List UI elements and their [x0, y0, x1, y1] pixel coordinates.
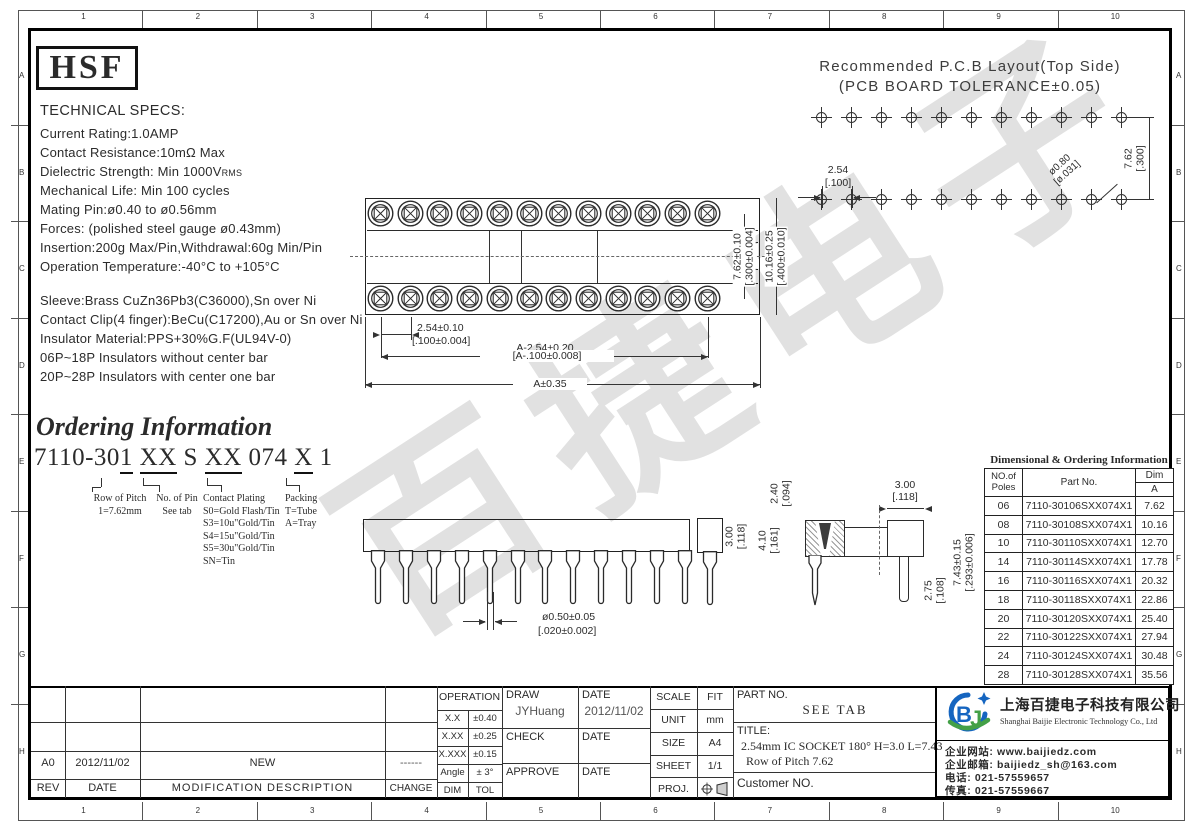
graphic — [425, 550, 443, 608]
body-line — [521, 231, 522, 283]
graphic — [701, 551, 719, 609]
graphic: 08 — [985, 515, 1023, 534]
graphic — [623, 551, 636, 604]
dim-text: 7.62 [.300] — [1122, 126, 1148, 190]
tech-specs-title: TECHNICAL SPECS: — [40, 103, 185, 119]
body-line — [597, 231, 598, 283]
graphic — [481, 550, 499, 608]
graphic — [397, 285, 424, 312]
ruler-number: 3 — [310, 12, 314, 21]
grid-line — [578, 686, 579, 798]
graphic: 10 — [985, 534, 1023, 553]
graphic — [511, 551, 524, 604]
pn-seg: 7110-30 — [34, 444, 120, 471]
ruler-number: 10 — [1111, 12, 1120, 21]
graphic — [704, 552, 717, 605]
socket-hole-icon — [367, 285, 394, 317]
pin-icon — [369, 550, 387, 613]
dim-mm: 10.16±0.25 — [764, 230, 776, 282]
ruler-letter: D — [19, 361, 25, 370]
draw-date: 2012/11/02 — [580, 704, 648, 718]
socket-hole-icon — [486, 285, 513, 317]
end-view-pin — [701, 551, 719, 614]
ruler-tick — [486, 11, 487, 28]
graphic: 7110-30106SXX074X1 — [1023, 497, 1136, 516]
spec-line: 06P~18P Insulators without center bar — [40, 350, 268, 365]
pn-seg-pins: XX — [140, 444, 177, 474]
date-label: DATE — [582, 766, 611, 778]
ruler-number: 6 — [653, 806, 657, 815]
ruler-tick — [11, 704, 28, 705]
pcb-hole-icon — [1086, 194, 1097, 205]
draw-name: JYHuang — [502, 704, 578, 718]
socket-hole-icon — [516, 200, 543, 232]
graphic — [634, 285, 661, 312]
ruler-letter: F — [1176, 554, 1181, 563]
graphic — [427, 551, 440, 604]
graphic: 7110-30124SXX074X1 — [1023, 647, 1136, 666]
ruler-number: 1 — [81, 806, 85, 815]
graphic: 06 — [985, 497, 1023, 516]
ruler-tick — [829, 802, 830, 820]
graphic — [595, 551, 608, 604]
pcb-layout-title: Recommended P.C.B Layout(Top Side) — [795, 58, 1145, 75]
ruler-letter: D — [1176, 361, 1182, 370]
graphic: 7.62 — [1136, 497, 1174, 516]
date-header: DATE — [65, 782, 140, 794]
spec-line: Contact Resistance:10mΩ Max — [40, 145, 225, 160]
dim-line — [1128, 117, 1154, 118]
ruler-tick — [600, 802, 601, 820]
graphic: 7.62±0.10 [.300±0.004] — [733, 226, 756, 286]
ruler-letter: A — [19, 71, 24, 80]
pin-icon — [648, 550, 666, 613]
grid-line — [502, 686, 503, 798]
ruler-letter: G — [19, 650, 25, 659]
spec-line: Current Rating:1.0AMP — [40, 126, 179, 141]
section-body-right — [887, 520, 924, 557]
graphic: 4.10 [.161] — [758, 526, 781, 554]
ruler-number: 1 — [81, 12, 85, 21]
sheet-value: 1/1 — [697, 760, 733, 772]
graphic — [700, 781, 730, 797]
sheet-label: SHEET — [650, 760, 697, 772]
socket-hole-icon — [367, 200, 394, 232]
grid-line — [437, 782, 502, 783]
pcb-hole-icon — [966, 194, 977, 205]
tol-label: Angle — [437, 767, 468, 778]
ruler-number: 2 — [196, 806, 200, 815]
dim-line — [1149, 117, 1150, 199]
grid-line — [502, 728, 650, 729]
dim-line — [463, 621, 485, 622]
spec-line: Mechanical Life: Min 100 cycles — [40, 183, 230, 198]
socket-hole-icon — [456, 200, 483, 232]
draw-label: DRAW — [506, 689, 539, 701]
ruler-number: 4 — [424, 12, 428, 21]
ruler-letter: C — [1176, 264, 1182, 273]
rev-header: REV — [31, 782, 65, 794]
ruler-tick — [257, 11, 258, 28]
body-line — [367, 283, 758, 284]
pcb-hole-icon — [1056, 194, 1067, 205]
dim-in: [.118] — [735, 523, 747, 549]
graphic: Poles — [992, 482, 1016, 493]
dim-mm: 2.40 — [769, 483, 781, 503]
ruler-letter: B — [19, 168, 24, 177]
graphic: 22 — [985, 628, 1023, 647]
tol-value: ±0.15 — [468, 749, 502, 760]
graphic — [397, 550, 415, 608]
graphic — [399, 551, 412, 604]
grid-line — [437, 710, 502, 711]
graphic — [620, 550, 638, 608]
ruler-tick — [1172, 221, 1185, 222]
date-label: DATE — [582, 689, 611, 701]
dim-line — [822, 186, 823, 208]
company-logo-icon: B J — [940, 690, 996, 741]
tol-label: X.XX — [437, 731, 468, 742]
ext-line — [760, 317, 761, 388]
customer-no-label: Customer NO. — [737, 776, 814, 790]
grid-line — [650, 777, 733, 778]
leader-line — [101, 478, 102, 487]
width-dim-in: [.118] — [881, 491, 929, 503]
graphic: 14 — [985, 553, 1023, 572]
spec-line: Sleeve:Brass CuZn36Pb3(C36000),Sn over N… — [40, 293, 316, 308]
group-item: S0=Gold Flash/Tin — [203, 506, 287, 519]
table-row: 107110-30110SXX074X112.70 — [985, 534, 1174, 553]
unit-label: UNIT — [650, 714, 697, 726]
pin-icon — [536, 550, 554, 613]
graphic — [516, 285, 543, 312]
dim-table-title: Dimensional & Ordering Information — [984, 454, 1174, 466]
socket-side-view-body — [363, 519, 690, 552]
pin-icon — [453, 550, 471, 613]
pin-icon — [397, 550, 415, 613]
graphic: 30.48 — [1136, 647, 1174, 666]
group-item: S4=15u"Gold/Tin — [203, 531, 287, 544]
ruler-number: 7 — [768, 806, 772, 815]
tol-value: ±0.25 — [468, 731, 502, 742]
depth-dim: 4.10 [.161] — [756, 514, 782, 566]
leader-line — [159, 485, 160, 492]
grid-line — [733, 722, 935, 723]
ruler-tick — [1172, 414, 1185, 415]
body-line — [489, 231, 490, 283]
ruler-tick — [371, 802, 372, 820]
leader-line — [92, 487, 101, 488]
dim-mm: 7.62 — [1123, 148, 1135, 168]
ruler-letter: E — [1176, 457, 1181, 466]
operation-header: OPERATION — [437, 691, 502, 703]
ordering-group-plating: Contact Plating S0=Gold Flash/Tin S3=10u… — [203, 493, 287, 568]
size-label: SIZE — [650, 737, 697, 749]
socket-hole-icon — [605, 285, 632, 317]
grid-line — [31, 779, 437, 780]
scale-label: SCALE — [650, 691, 697, 703]
socket-hole-icon — [634, 200, 661, 232]
ruler-tick — [11, 125, 28, 126]
datasheet-page: 百捷电子 1122334455667788991010AABBCCDDEEFFG… — [0, 0, 1200, 832]
pin-icon — [564, 550, 582, 613]
graphic — [567, 551, 580, 604]
dim-in: [.300±0.004] — [743, 227, 755, 285]
graphic: 7110-30128SXX074X1 — [1023, 666, 1136, 685]
group-item: See tab — [148, 506, 206, 519]
socket-hole-icon — [545, 200, 572, 232]
dim-table-header: NO.ofPoles Part No. Dim — [985, 469, 1174, 483]
dim-line — [887, 508, 924, 509]
group-title: No. of Pin — [148, 493, 206, 506]
ruler-letter: F — [19, 554, 24, 563]
pitch-dim-in: [.100±0.004] — [412, 335, 470, 347]
graphic — [648, 550, 666, 608]
socket-hole-icon — [426, 200, 453, 232]
socket-hole-icon — [664, 200, 691, 232]
graphic: 17.78 — [1136, 553, 1174, 572]
ruler-tick — [11, 414, 28, 415]
table-row: 067110-30106SXX074X17.62 — [985, 497, 1174, 516]
ruler-tick — [257, 802, 258, 820]
pn-seg-packing: X — [294, 444, 313, 474]
pin-dia-dim: ø0.50±0.05 — [542, 611, 595, 623]
leader-line — [143, 478, 144, 485]
height-dim: 3.00 [.118] — [722, 513, 750, 559]
socket-hole-icon — [605, 200, 632, 232]
graphic: 3.00 [.118] — [725, 522, 748, 550]
pcb-hole-icon — [1116, 112, 1127, 123]
group-item: S3=10u"Gold/Tin — [203, 518, 287, 531]
ordering-group-packing: Packing T=Tube A=Tray — [285, 493, 333, 531]
ruler-tick — [1172, 125, 1185, 126]
dim-line — [495, 621, 517, 622]
socket-hole-icon — [694, 200, 721, 232]
dim-mm: 7.62±0.10 — [732, 233, 744, 280]
socket-end-view — [697, 518, 723, 553]
tol-value: ±0.40 — [468, 713, 502, 724]
ruler-letter: G — [1176, 650, 1182, 659]
pn-seg-pitch: 1 — [120, 444, 133, 474]
group-item: T=Tube — [285, 506, 333, 519]
dim-in: [.161] — [768, 527, 780, 553]
rms-subscript: RMS — [222, 168, 243, 178]
size-value: A4 — [697, 737, 733, 749]
body-width-dim: 10.16±0.25 [.400±0.010] — [761, 198, 791, 315]
pcb-hole-icon — [906, 194, 917, 205]
dim-in: [.108] — [934, 577, 946, 603]
graphic: 10.16±0.25 [.400±0.010] — [765, 226, 788, 286]
socket-hole-icon — [397, 200, 424, 232]
graphic: 7110-30116SXX074X1 — [1023, 572, 1136, 591]
check-label: CHECK — [506, 731, 545, 743]
pin-dia-dim-in: [.020±0.002] — [538, 625, 596, 637]
centerline — [879, 505, 880, 575]
socket-hole-icon — [397, 285, 424, 317]
pcb-hole-icon — [876, 112, 887, 123]
graphic — [483, 551, 496, 604]
graphic: 12.70 — [1136, 534, 1174, 553]
ruler-tick — [11, 221, 28, 222]
ruler-number: 9 — [996, 806, 1000, 815]
pcb-hole-icon — [1116, 194, 1127, 205]
proj-label: PROJ. — [650, 783, 697, 795]
spec-line: Forces: (polished steel gauge ø0.43mm) — [40, 221, 281, 236]
pin-icon — [676, 550, 694, 613]
ruler-tick — [943, 802, 944, 820]
dim-line — [798, 197, 820, 198]
leader-line — [143, 485, 159, 486]
graphic — [809, 555, 821, 605]
table-row: 287110-30128SXX074X135.56 — [985, 666, 1174, 685]
ruler-number: 4 — [424, 806, 428, 815]
leader-line — [207, 485, 221, 486]
socket-hole-icon — [426, 285, 453, 317]
graphic — [372, 551, 385, 604]
dim-line — [381, 334, 411, 335]
tail-dim: 2.75 [.108] — [922, 568, 948, 612]
dim-in: [.300] — [1134, 145, 1146, 171]
section-pin-right — [899, 556, 909, 602]
graphic — [456, 285, 483, 312]
graphic — [575, 200, 602, 227]
spec-line: Operation Temperature:-40°C to +105°C — [40, 259, 280, 274]
graphic: 27.94 — [1136, 628, 1174, 647]
ruler-tick — [829, 11, 830, 28]
table-row: 247110-30124SXX074X130.48 — [985, 647, 1174, 666]
group-title: Row of Pitch — [84, 493, 156, 506]
rev-desc: NEW — [140, 757, 385, 769]
group-title: Packing — [285, 493, 333, 506]
graphic: NO.of — [991, 471, 1016, 482]
graphic: 28 — [985, 666, 1023, 685]
ruler-tick — [1058, 11, 1059, 28]
pcb-hole-icon — [846, 112, 857, 123]
leader-line — [207, 478, 208, 485]
table-row: 087110-30108SXX074X110.16 — [985, 515, 1174, 534]
graphic — [694, 285, 721, 312]
ruler-number: 2 — [196, 12, 200, 21]
pn-seg: 074 — [242, 444, 295, 471]
graphic — [651, 551, 664, 604]
graphic — [456, 200, 483, 227]
graphic — [426, 285, 453, 312]
change-header: CHANGE — [385, 783, 437, 794]
graphic: 2.75 [.108] — [924, 576, 947, 604]
pcb-hole-icon — [936, 112, 947, 123]
graphic — [592, 550, 610, 608]
pcb-hole-icon — [936, 194, 947, 205]
dim-mm: 2.75 — [923, 580, 935, 600]
company-name-cn: 上海百捷电子科技有限公司 — [1000, 694, 1180, 715]
ext-line — [493, 592, 494, 630]
ext-line — [487, 592, 488, 630]
pn-seg-plating: XX — [205, 444, 242, 474]
graphic: 7110-30108SXX074X1 — [1023, 515, 1136, 534]
ruler-number: 5 — [539, 806, 543, 815]
pcb-hole-icon — [996, 112, 1007, 123]
ruler-tick — [714, 802, 715, 820]
rev-value: A0 — [31, 757, 65, 769]
ruler-tick — [142, 802, 143, 820]
ordering-group-pins: No. of Pin See tab — [148, 493, 206, 518]
grid-line — [733, 686, 734, 798]
part-no-label: PART NO. — [737, 689, 788, 701]
dim-in: [.293±0.006] — [963, 533, 975, 591]
graphic — [367, 285, 394, 312]
ruler-tick — [371, 11, 372, 28]
spec-text: Dielectric Strength: Min 1000V — [40, 164, 222, 179]
graphic — [605, 200, 632, 227]
graphic — [664, 285, 691, 312]
socket-hole-icon — [486, 200, 513, 232]
ruler-number: 7 — [768, 12, 772, 21]
socket-hole-icon — [516, 285, 543, 317]
date-label: DATE — [582, 731, 611, 743]
scale-value: FIT — [697, 691, 733, 703]
graphic — [564, 550, 582, 608]
ext-line — [365, 317, 366, 388]
graphic: J — [970, 706, 982, 731]
graphic: B J — [940, 690, 996, 736]
socket-hole-icon — [634, 285, 661, 317]
dim-mm: 4.10 — [757, 530, 769, 550]
pcb-hole-icon — [816, 112, 827, 123]
dim-in: [.094] — [780, 480, 792, 506]
graphic — [978, 692, 991, 705]
graphic: 7110-30118SXX074X1 — [1023, 590, 1136, 609]
graphic — [369, 550, 387, 608]
entry-dim: 2.40 [.094] — [768, 470, 794, 516]
rev-change: ------ — [385, 757, 437, 769]
graphic: 16 — [985, 572, 1023, 591]
ruler-letter: B — [1176, 168, 1181, 177]
tol-value: ± 3° — [468, 767, 502, 778]
pin-icon — [509, 550, 527, 613]
ruler-number: 3 — [310, 806, 314, 815]
col-dim: Dim — [1136, 469, 1174, 483]
pin-icon — [620, 550, 638, 613]
graphic: 7110-30120SXX074X1 — [1023, 609, 1136, 628]
ruler-number: 6 — [653, 12, 657, 21]
dim-mm: 3.00 — [724, 526, 736, 546]
group-item: S5=30u"Gold/Tin — [203, 543, 287, 556]
ext-line — [381, 317, 382, 358]
graphic — [717, 783, 727, 796]
overall-dim: A±0.35 — [513, 378, 587, 390]
graphic: NO.ofPoles Part No. Dim A 067110-30106SX… — [985, 469, 1174, 685]
graphic — [664, 200, 691, 227]
graphic — [367, 200, 394, 227]
table-row: 187110-30118SXX074X122.86 — [985, 590, 1174, 609]
company-fax: 传真: 021-57559667 — [945, 783, 1050, 798]
graphic — [545, 285, 572, 312]
graphic — [545, 200, 572, 227]
leader-line — [286, 485, 299, 486]
group-item: 1=7.62mm — [84, 506, 156, 519]
ruler-letter: A — [1176, 71, 1181, 80]
dim-line — [852, 186, 853, 208]
socket-hole-icon — [545, 285, 572, 317]
dim-mm: 7.43±0.15 — [952, 539, 964, 586]
grid-line — [385, 686, 386, 798]
pcb-hole-icon — [996, 194, 1007, 205]
grid-line — [650, 709, 733, 710]
ruler-letter: H — [19, 747, 25, 756]
spec-line: 20P~28P Insulators with center one bar — [40, 369, 275, 384]
pcb-layout-subtitle: (PCB BOARD TOLERANCE±0.05) — [795, 78, 1145, 95]
graphic — [455, 551, 468, 604]
